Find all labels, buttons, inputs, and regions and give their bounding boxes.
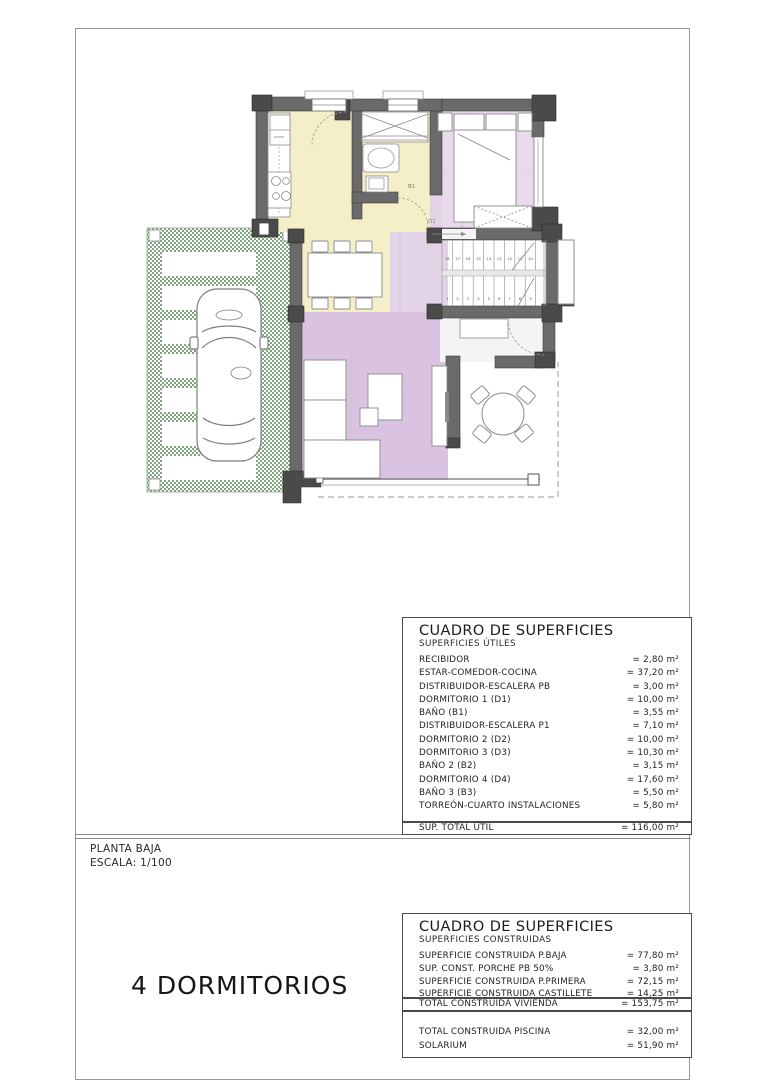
sofa-chaise xyxy=(304,440,380,478)
row-value: = 5,50 m² xyxy=(633,787,679,800)
car-mirror-right xyxy=(260,337,268,349)
headline: 4 DORMITORIOS xyxy=(131,971,348,1000)
porch-table xyxy=(482,393,524,435)
table-title: CUADRO DE SUPERFICIES xyxy=(419,920,679,935)
table-rows: SUPERFICIE CONSTRUIDA P.BAJA= 77,80 m²SU… xyxy=(419,950,679,1001)
stair-step-number: 3 xyxy=(467,296,470,301)
stair-numbers-bottom: 123456789 xyxy=(446,296,532,301)
sofa-cushion xyxy=(304,360,346,400)
stair-step-number: 2 xyxy=(456,296,459,301)
row-value: = 72,15 m² xyxy=(627,976,679,989)
row-label: TORREÓN-CUARTO INSTALACIONES xyxy=(419,800,580,813)
stair-step-number: 13 xyxy=(497,256,502,261)
window-sill xyxy=(305,91,353,99)
stair-step-number: 6 xyxy=(498,296,501,301)
bathroom-label: B1 xyxy=(408,184,416,190)
table-row: DISTRIBUIDOR-ESCALERA PB= 3,00 m² xyxy=(419,681,679,694)
table-row: DORMITORIO 3 (D3)= 10,30 m² xyxy=(419,747,679,760)
table-row: DORMITORIO 4 (D4)= 17,60 m² xyxy=(419,774,679,787)
table-row: ESTAR-COMEDOR-COCINA= 37,20 m² xyxy=(419,667,679,680)
sofa-cushion xyxy=(304,400,346,440)
row-value: = 37,20 m² xyxy=(627,667,679,680)
parking-area xyxy=(147,228,295,492)
row-label: TOTAL CONSTRUIDA PISCINA xyxy=(419,1026,551,1039)
row-value: = 10,00 m² xyxy=(627,734,679,747)
side-ledge xyxy=(558,240,574,304)
row-label: SUPERFICIE CONSTRUIDA P.PRIMERA xyxy=(419,976,586,989)
table-row: DORMITORIO 1 (D1)= 10,00 m² xyxy=(419,694,679,707)
stair-step-number: 15 xyxy=(476,256,481,261)
stair-step-number: 11 xyxy=(518,256,523,261)
table-title: CUADRO DE SUPERFICIES xyxy=(419,624,679,639)
stair-step-number: 7 xyxy=(508,296,511,301)
bathroom-closet xyxy=(362,112,428,142)
row-value: = 10,00 m² xyxy=(627,694,679,707)
row-value: = 3,80 m² xyxy=(633,963,679,976)
table-row: BAÑO (B1)= 3,55 m² xyxy=(419,707,679,720)
row-label: SOLARIUM xyxy=(419,1040,467,1053)
row-label: DISTRIBUIDOR-ESCALERA P1 xyxy=(419,720,550,733)
plan-sheet: B1 D1 181716151413121110 123 xyxy=(0,0,764,1080)
row-value: = 3,00 m² xyxy=(633,681,679,694)
stair-step-number: 12 xyxy=(507,256,512,261)
table-row: DISTRIBUIDOR-ESCALERA P1= 7,10 m² xyxy=(419,720,679,733)
total-construida-row: TOTAL CONSTRUIDA VIVIENDA = 153,75 m² xyxy=(402,998,692,1011)
row-value: = 7,10 m² xyxy=(633,720,679,733)
row-value: = 51,90 m² xyxy=(627,1040,679,1053)
stair-numbers-top: 181716151413121110 xyxy=(445,256,534,261)
row-value: = 10,30 m² xyxy=(627,747,679,760)
stair-step-number: 4 xyxy=(477,296,480,301)
scale-label: ESCALA: 1/100 xyxy=(90,856,172,870)
table-rows: TOTAL CONSTRUIDA PISCINA= 32,00 m²SOLARI… xyxy=(419,1026,679,1053)
bedroom-label: D1 xyxy=(428,219,436,225)
row-label: SUP. CONST. PORCHE PB 50% xyxy=(419,963,553,976)
row-value: = 2,80 m² xyxy=(633,654,679,667)
kitchen xyxy=(268,113,291,217)
total-value: = 153,75 m² xyxy=(621,999,679,1010)
row-label: SUPERFICIE CONSTRUIDA P.BAJA xyxy=(419,950,567,963)
row-value: = 5,80 m² xyxy=(633,800,679,813)
table-row: BAÑO 3 (B3)= 5,50 m² xyxy=(419,787,679,800)
stair-landing xyxy=(442,270,546,276)
hall-closet xyxy=(460,319,508,338)
row-label: BAÑO 3 (B3) xyxy=(419,787,476,800)
nightstand-left xyxy=(438,113,452,131)
row-value: = 3,15 m² xyxy=(633,760,679,773)
entry-door xyxy=(259,223,269,235)
stair-step-number: 10 xyxy=(528,256,533,261)
row-label: ESTAR-COMEDOR-COCINA xyxy=(419,667,537,680)
total-label: TOTAL CONSTRUIDA VIVIENDA xyxy=(419,999,558,1010)
table-row: RECIBIDOR= 2,80 m² xyxy=(419,654,679,667)
row-label: DORMITORIO 4 (D4) xyxy=(419,774,511,787)
table-row: BAÑO 2 (B2)= 3,15 m² xyxy=(419,760,679,773)
row-value: = 77,80 m² xyxy=(627,950,679,963)
nightstand-right xyxy=(518,113,532,131)
surface-table-utiles: CUADRO DE SUPERFICIES SUPERFICIES ÚTILES… xyxy=(402,617,692,822)
dining-set xyxy=(308,241,382,309)
extra-totals-box: TOTAL CONSTRUIDA PISCINA= 32,00 m²SOLARI… xyxy=(402,1011,692,1058)
cooktop xyxy=(268,172,291,208)
table-row: SUP. CONST. PORCHE PB 50%= 3,80 m² xyxy=(419,963,679,976)
table-rows: RECIBIDOR= 2,80 m²ESTAR-COMEDOR-COCINA= … xyxy=(419,654,679,814)
total-value: = 116,00 m² xyxy=(621,823,679,834)
distributor-floor xyxy=(390,232,448,312)
tv xyxy=(445,392,449,422)
side-table xyxy=(360,408,378,426)
row-label: RECIBIDOR xyxy=(419,654,470,667)
table-row: SOLARIUM= 51,90 m² xyxy=(419,1040,679,1053)
floor-name: PLANTA BAJA xyxy=(90,842,172,856)
table-row: TOTAL CONSTRUIDA PISCINA= 32,00 m² xyxy=(419,1026,679,1039)
car-mirror-left xyxy=(190,337,198,349)
stair-step-number: 5 xyxy=(488,296,491,301)
bedroom-window xyxy=(534,137,543,207)
car xyxy=(190,289,268,461)
dining-table xyxy=(308,253,382,297)
table-row: TORREÓN-CUARTO INSTALACIONES= 5,80 m² xyxy=(419,800,679,813)
row-label: DORMITORIO 3 (D3) xyxy=(419,747,511,760)
plan-meta: PLANTA BAJA ESCALA: 1/100 xyxy=(90,842,172,870)
row-value: = 32,00 m² xyxy=(627,1026,679,1039)
tv-unit xyxy=(432,366,447,446)
row-label: BAÑO (B1) xyxy=(419,707,468,720)
row-label: DORMITORIO 1 (D1) xyxy=(419,694,511,707)
row-value: = 3,55 m² xyxy=(633,707,679,720)
row-value: = 17,60 m² xyxy=(627,774,679,787)
pillow xyxy=(486,114,516,130)
floor-plan: B1 D1 181716151413121110 123 xyxy=(140,85,605,510)
table-subtitle: SUPERFICIES CONSTRUIDAS xyxy=(419,935,679,945)
table-subtitle: SUPERFICIES ÚTILES xyxy=(419,639,679,649)
stair-step-number: 9 xyxy=(529,296,532,301)
row-label: BAÑO 2 (B2) xyxy=(419,760,476,773)
table-row: SUPERFICIE CONSTRUIDA P.BAJA= 77,80 m² xyxy=(419,950,679,963)
total-util-row: SUP. TOTAL ÚTIL = 116,00 m² xyxy=(402,822,692,835)
stair-step-number: 18 xyxy=(445,256,450,261)
row-label: DORMITORIO 2 (D2) xyxy=(419,734,511,747)
table-row: DORMITORIO 2 (D2)= 10,00 m² xyxy=(419,734,679,747)
pillow xyxy=(454,114,484,130)
stair-step-number: 16 xyxy=(466,256,471,261)
table-row: SUPERFICIE CONSTRUIDA P.PRIMERA= 72,15 m… xyxy=(419,976,679,989)
surface-table-construidas: CUADRO DE SUPERFICIES SUPERFICIES CONSTR… xyxy=(402,913,692,998)
row-label: DISTRIBUIDOR-ESCALERA PB xyxy=(419,681,550,694)
stair-step-number: 17 xyxy=(455,256,460,261)
stair-step-number: 1 xyxy=(446,296,449,301)
total-label: SUP. TOTAL ÚTIL xyxy=(419,823,494,834)
stair-step-number: 14 xyxy=(486,256,491,261)
